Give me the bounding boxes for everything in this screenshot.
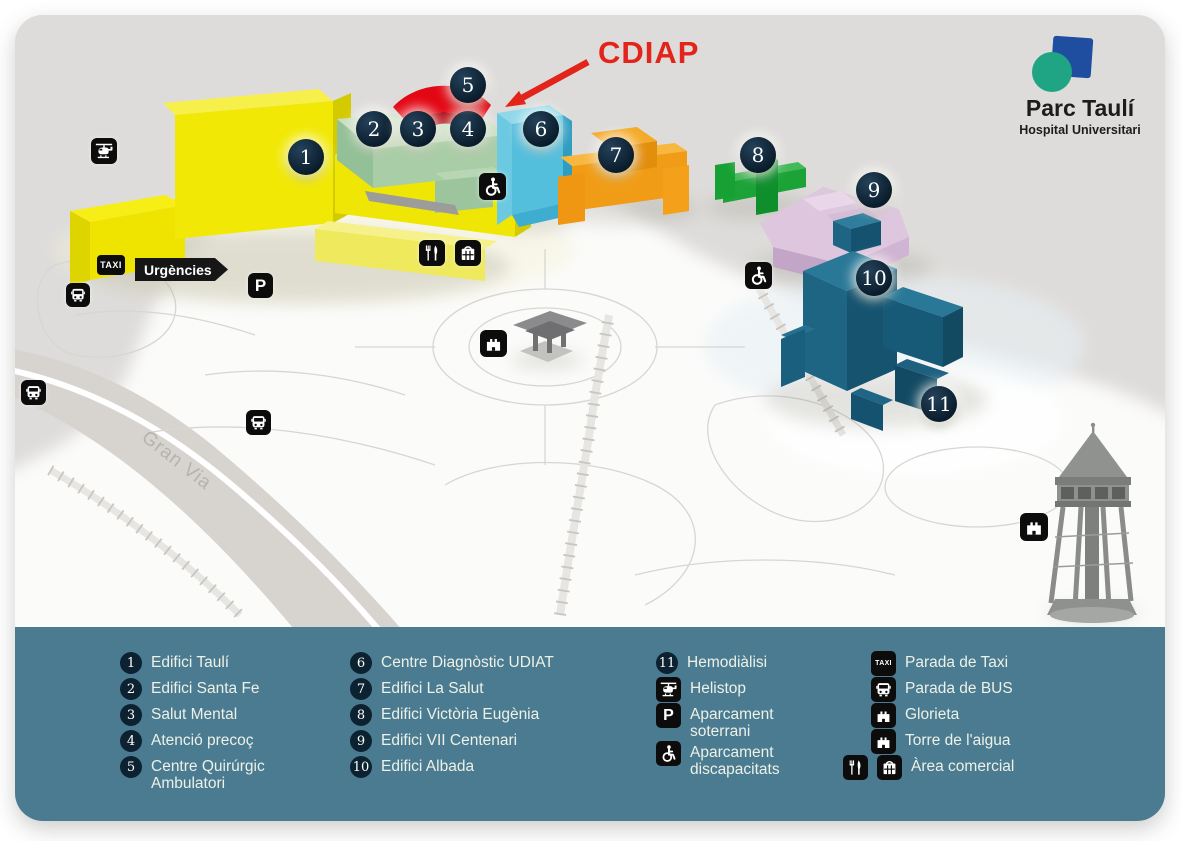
map-legend: 1 Edifici Taulí 2 Edifici Santa Fe 3 Sal… (15, 627, 1165, 821)
legend-column-1: 1 Edifici Taulí 2 Edifici Santa Fe 3 Sal… (120, 651, 283, 792)
legend-badge-11: 11 (656, 652, 678, 674)
shop-icon (455, 240, 481, 266)
bus-stop-icon (66, 283, 90, 307)
building-marker-8: 8 (740, 137, 776, 173)
campus-map: CDIAP Gran Via 1 2 3 4 5 6 7 8 9 10 11 T… (15, 15, 1165, 627)
legend-facility-bus: Parada de BUS (871, 677, 1014, 702)
cdiap-annotation: CDIAP (598, 35, 699, 71)
building-marker-6: 6 (523, 111, 559, 147)
water-tower-icon (1020, 513, 1048, 541)
legend-facility-parking: P Aparcament soterrani (656, 703, 802, 740)
legend-item-2: 2 Edifici Santa Fe (120, 677, 283, 702)
legend-facility-taxi: TAXI Parada de Taxi (871, 651, 1014, 676)
page: { "logo": { "title": "Parc Taulí", "subt… (0, 0, 1181, 841)
legend-badge-10: 10 (350, 756, 372, 778)
legend-facility-disabled-parking: Aparcament discapacitats (656, 741, 802, 778)
urgencies-tag: Urgències (135, 258, 228, 281)
building-marker-5: 5 (450, 67, 486, 103)
legend-item-4: 4 Atenció precoç (120, 729, 283, 754)
building-marker-4: 4 (450, 111, 486, 147)
legend-item-9: 9 Edifici VII Centenari (350, 729, 554, 754)
building-marker-7: 7 (598, 137, 634, 173)
legend-facility-helistop: Helistop (656, 677, 802, 702)
taxi-icon: TAXI (871, 651, 896, 676)
restaurant-icon (419, 240, 445, 266)
legend-item-6: 6 Centre Diagnòstic UDIAT (350, 651, 554, 676)
wheelchair-icon (745, 262, 772, 289)
building-marker-3: 3 (400, 111, 436, 147)
legend-facility-water-tower: Torre de l'aigua (871, 729, 1014, 754)
legend-column-4: TAXI Parada de Taxi Parada de BUS Glorie… (871, 651, 1014, 780)
legend-badge-2: 2 (120, 678, 142, 700)
legend-badge-5: 5 (120, 756, 142, 778)
legend-item-5: 5 Centre Quirúrgic Ambulatori (120, 755, 283, 792)
legend-badge-4: 4 (120, 730, 142, 752)
taxi-stop-sign: TAXI (97, 255, 125, 275)
parking-icon: P (656, 703, 681, 728)
legend-item-8: 8 Edifici Victòria Eugènia (350, 703, 554, 728)
building-marker-1: 1 (288, 139, 324, 175)
legend-facility-commercial: Àrea comercial (871, 755, 1014, 780)
legend-item-11: 11 Hemodiàlisi (656, 651, 802, 676)
tower-icon (871, 703, 896, 728)
legend-item-1: 1 Edifici Taulí (120, 651, 283, 676)
legend-badge-9: 9 (350, 730, 372, 752)
wheelchair-icon (656, 741, 681, 766)
logo-title: Parc Taulí (1000, 95, 1160, 122)
legend-column-3: 11 Hemodiàlisi Helistop P Aparcament sot… (656, 651, 802, 778)
parc-tauli-logo: Parc Taulí Hospital Universitari (1000, 37, 1160, 137)
tower-icon (871, 729, 896, 754)
map-card: CDIAP Gran Via 1 2 3 4 5 6 7 8 9 10 11 T… (15, 15, 1165, 821)
parking-icon: P (248, 273, 273, 298)
bus-stop-icon (246, 410, 271, 435)
wheelchair-icon (479, 173, 506, 200)
helistop-icon (91, 138, 117, 164)
glorieta-icon (480, 330, 507, 357)
building-marker-9: 9 (856, 172, 892, 208)
logo-green-circle-icon (1032, 52, 1072, 92)
building-marker-10: 10 (856, 260, 892, 296)
helicopter-icon (656, 677, 681, 702)
bus-icon (871, 677, 896, 702)
legend-item-7: 7 Edifici La Salut (350, 677, 554, 702)
legend-column-2: 6 Centre Diagnòstic UDIAT 7 Edifici La S… (350, 651, 554, 780)
legend-facility-glorieta: Glorieta (871, 703, 1014, 728)
legend-badge-6: 6 (350, 652, 372, 674)
restaurant-icon (843, 755, 868, 780)
legend-item-3: 3 Salut Mental (120, 703, 283, 728)
bus-stop-icon (21, 380, 46, 405)
legend-badge-8: 8 (350, 704, 372, 726)
shop-icon (877, 755, 902, 780)
legend-item-10: 10 Edifici Albada (350, 755, 554, 780)
legend-badge-1: 1 (120, 652, 142, 674)
building-marker-11: 11 (921, 386, 957, 422)
logo-subtitle: Hospital Universitari (1000, 123, 1160, 137)
legend-badge-7: 7 (350, 678, 372, 700)
campus-map-drawing (15, 15, 1165, 627)
legend-badge-3: 3 (120, 704, 142, 726)
building-marker-2: 2 (356, 111, 392, 147)
